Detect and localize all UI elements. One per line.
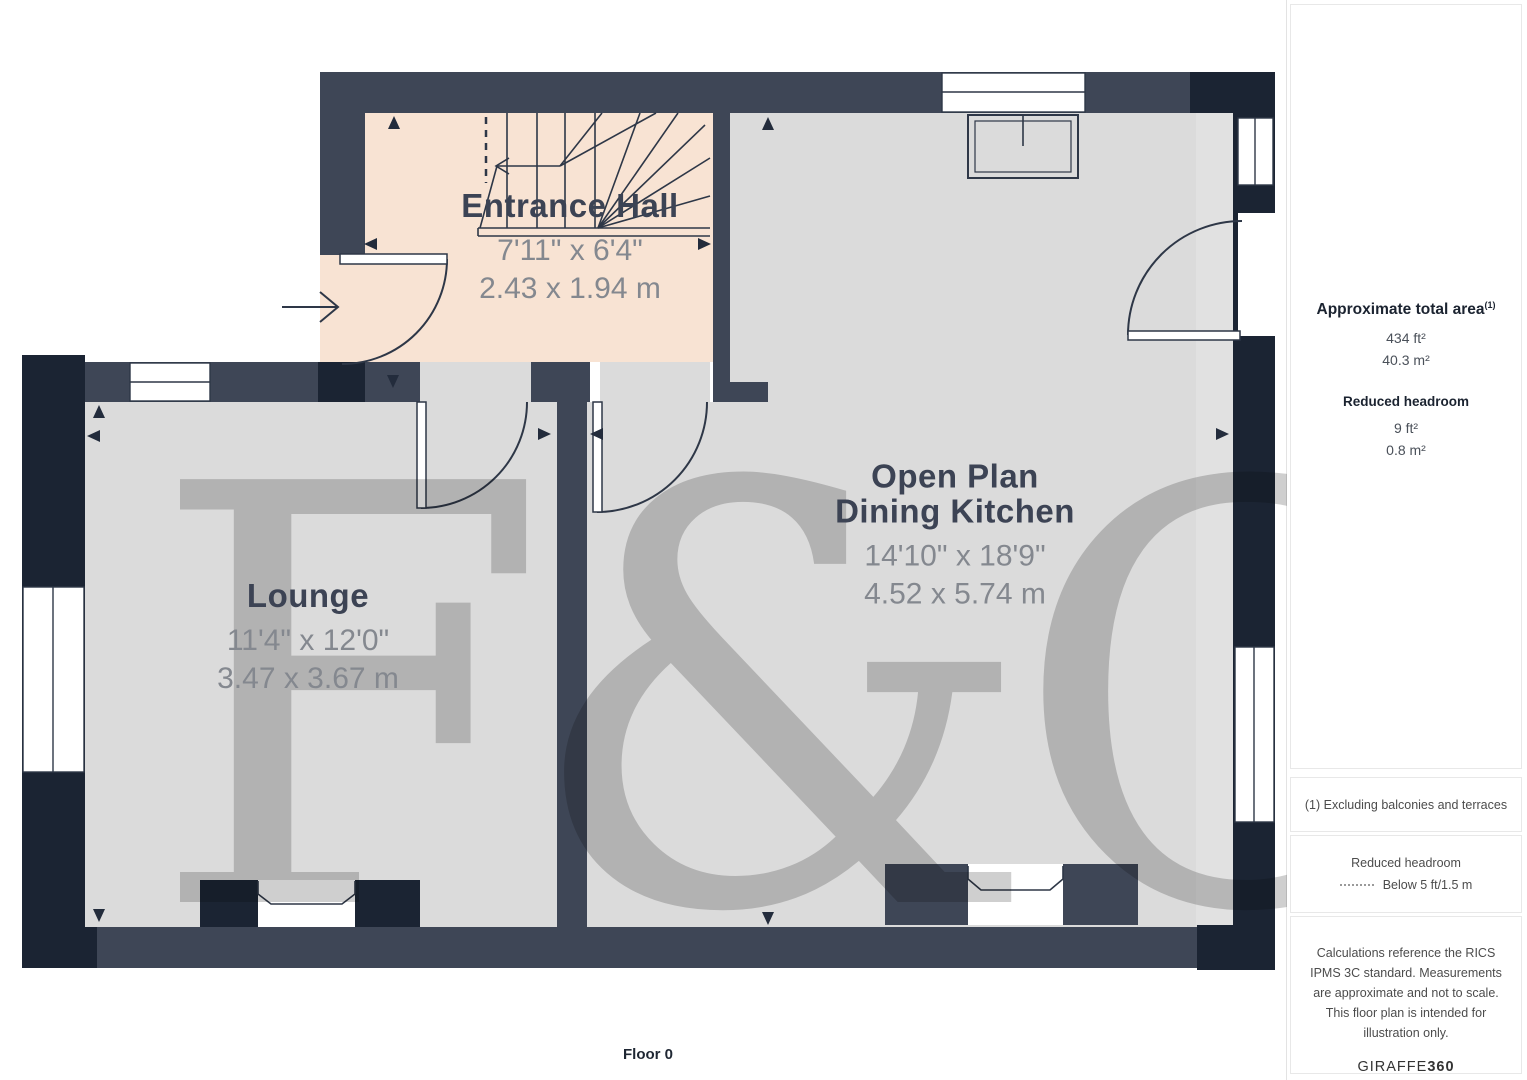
sidebar-area-panel: Approximate total area(1) 434 ft² 40.3 m… xyxy=(1290,4,1522,769)
sidebar-legend: Reduced headroom Below 5 ft/1.5 m xyxy=(1290,835,1522,913)
window-kitchen-right-upper xyxy=(1238,118,1273,185)
room-dims-metric: 3.47 x 3.67 m xyxy=(217,660,399,698)
floorplan-page: F&C Entrance Hall 7'11" x 6'4" 2.43 x 1.… xyxy=(0,0,1527,1080)
room-dims-imperial: 11'4" x 12'0" xyxy=(217,622,399,660)
legend-title: Reduced headroom xyxy=(1351,856,1461,870)
footnote-marker: (1) xyxy=(1484,300,1495,310)
room-name: Entrance Hall xyxy=(461,188,678,223)
sidebar-exclusion-note: (1) Excluding balconies and terraces xyxy=(1290,777,1522,832)
room-dims-metric: 4.52 x 5.74 m xyxy=(835,576,1075,614)
room-label-entrance-hall: Entrance Hall 7'11" x 6'4" 2.43 x 1.94 m xyxy=(461,188,678,308)
reduced-headroom-ft: 9 ft² xyxy=(1291,417,1521,439)
total-area-ft: 434 ft² xyxy=(1291,327,1521,349)
exclusion-note-text: (1) Excluding balconies and terraces xyxy=(1305,798,1507,812)
room-dims-imperial: 7'11" x 6'4" xyxy=(461,232,678,270)
agency-watermark: F&C xyxy=(148,412,1287,992)
sidebar-disclaimer: Calculations reference the RICS IPMS 3C … xyxy=(1290,916,1522,1074)
room-name-line1: Open Plan xyxy=(835,459,1075,494)
reduced-headroom-title: Reduced headroom xyxy=(1291,394,1521,409)
room-label-lounge: Lounge 11'4" x 12'0" 3.47 x 3.67 m xyxy=(217,578,399,698)
window-lounge-side xyxy=(23,587,84,772)
brand-name: GIRAFFE xyxy=(1357,1059,1427,1075)
window-kitchen-top xyxy=(942,73,1085,112)
reduced-headroom-m: 0.8 m² xyxy=(1291,439,1521,461)
floorplan-canvas: F&C Entrance Hall 7'11" x 6'4" 2.43 x 1.… xyxy=(0,0,1287,1080)
floor-caption: Floor 0 xyxy=(623,1046,673,1063)
room-label-kitchen: Open Plan Dining Kitchen 14'10" x 18'9" … xyxy=(835,459,1075,614)
room-name: Lounge xyxy=(217,578,399,613)
room-name-line2: Dining Kitchen xyxy=(835,494,1075,529)
brand-suffix: 360 xyxy=(1427,1059,1454,1075)
giraffe360-logo: GIRAFFE360 xyxy=(1291,1059,1521,1075)
legend-label: Below 5 ft/1.5 m xyxy=(1383,878,1473,892)
dashed-line-icon xyxy=(1340,884,1374,886)
total-area-title: Approximate total area(1) xyxy=(1291,300,1521,319)
disclaimer-text: Calculations reference the RICS IPMS 3C … xyxy=(1308,943,1504,1043)
room-dims-metric: 2.43 x 1.94 m xyxy=(461,270,678,308)
room-dims-imperial: 14'10" x 18'9" xyxy=(835,538,1075,576)
total-area-m: 40.3 m² xyxy=(1291,349,1521,371)
